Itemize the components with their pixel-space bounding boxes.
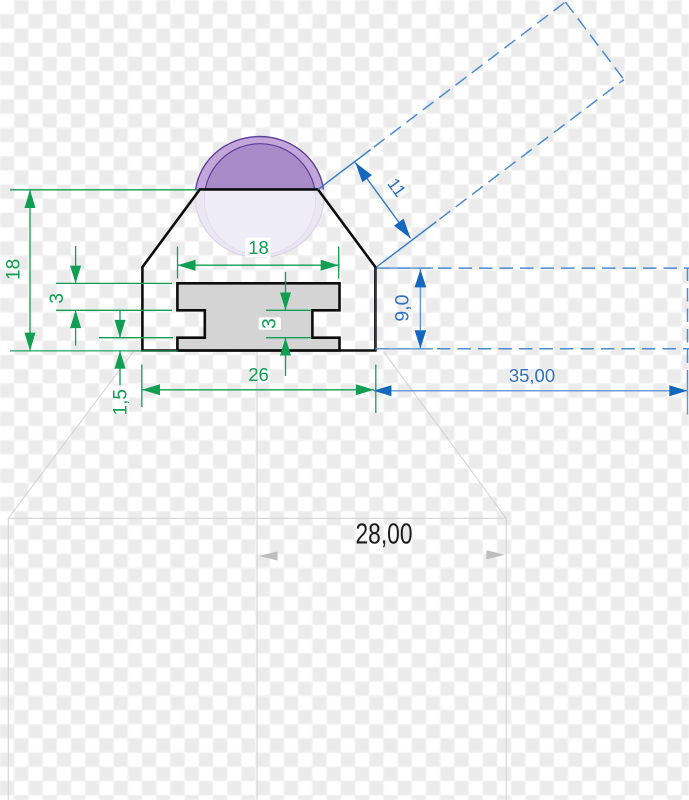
svg-text:35,00: 35,00 [509, 365, 555, 386]
svg-text:1,5: 1,5 [110, 389, 131, 415]
svg-text:28,00: 28,00 [356, 518, 413, 550]
svg-text:26: 26 [248, 364, 269, 385]
svg-text:18: 18 [248, 237, 269, 258]
svg-text:3: 3 [259, 318, 280, 329]
svg-text:18: 18 [3, 259, 24, 280]
svg-text:9,0: 9,0 [392, 294, 414, 321]
svg-text:3: 3 [47, 293, 68, 304]
